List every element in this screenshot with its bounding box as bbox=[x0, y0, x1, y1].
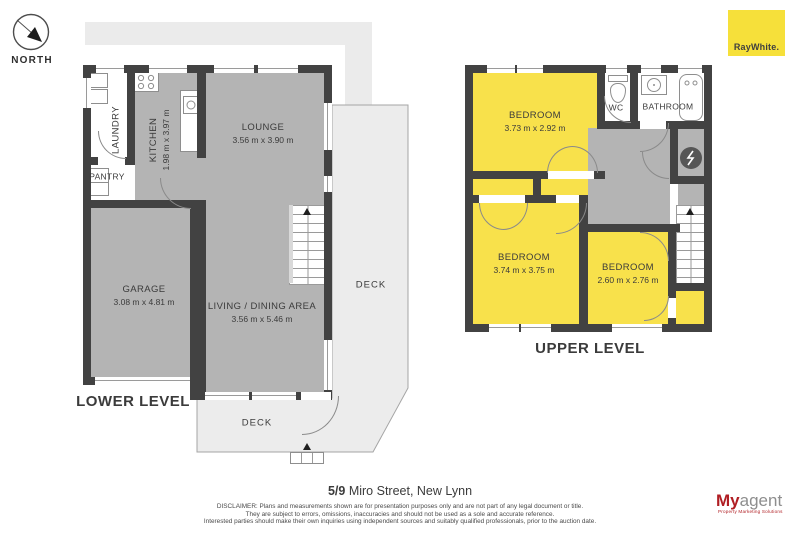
overhang-outline-top bbox=[85, 22, 372, 45]
disclaimer-line: They are subject to errors, omissions, i… bbox=[0, 511, 800, 519]
north-label: NORTH bbox=[6, 55, 58, 66]
window bbox=[96, 65, 124, 73]
upper-level-title: UPPER LEVEL bbox=[535, 339, 645, 359]
address-unit: 5/9 bbox=[328, 484, 345, 498]
stairs-up-arrow-icon bbox=[303, 208, 311, 215]
room-label-pantry: PANTRY bbox=[89, 171, 125, 182]
room-label-bedroom-small: BEDROOM 2.60 m x 2.76 m bbox=[598, 262, 659, 286]
window bbox=[489, 324, 519, 332]
laundry-appliance-icon bbox=[90, 89, 108, 104]
room-label-kitchen: KITCHEN 1.98 m x 3.97 m bbox=[148, 110, 172, 171]
wall bbox=[83, 65, 91, 385]
disclaimer: DISCLAIMER: Plans and measurements shown… bbox=[0, 503, 800, 526]
toilet-icon bbox=[608, 75, 628, 82]
room-label-wc: WC bbox=[609, 102, 624, 113]
hot-water-cylinder-icon bbox=[680, 147, 702, 169]
address-street: Miro Street, New Lynn bbox=[345, 484, 472, 498]
bathtub-icon bbox=[679, 74, 703, 121]
stove-icon bbox=[133, 72, 159, 92]
north-compass-icon bbox=[12, 13, 52, 55]
door-opening bbox=[556, 195, 579, 203]
wall bbox=[670, 129, 678, 183]
lower-level-title: LOWER LEVEL bbox=[76, 392, 190, 412]
stairs-lower bbox=[289, 205, 327, 285]
wall bbox=[533, 179, 541, 195]
window bbox=[487, 65, 515, 73]
stairs-upper bbox=[676, 205, 706, 285]
window bbox=[252, 392, 296, 400]
laundry-appliance-icon bbox=[90, 73, 108, 88]
basin-icon bbox=[641, 75, 667, 95]
window bbox=[641, 65, 661, 73]
room-label-bathroom: BATHROOM bbox=[643, 101, 694, 112]
room-label-garage: GARAGE 3.08 m x 4.81 m bbox=[114, 284, 175, 308]
wall bbox=[668, 283, 712, 291]
kitchen-floor bbox=[197, 158, 206, 200]
window bbox=[517, 65, 543, 73]
raywhite-logo-text: RayWhite. bbox=[728, 42, 785, 52]
deck-steps-arrow-icon bbox=[303, 443, 311, 450]
wall bbox=[704, 65, 712, 332]
property-address: 5/9 Miro Street, New Lynn bbox=[0, 484, 800, 498]
window bbox=[149, 65, 187, 73]
door-opening bbox=[668, 298, 676, 318]
door-opening bbox=[479, 195, 525, 203]
window bbox=[205, 392, 249, 400]
deck-steps bbox=[290, 452, 324, 464]
wall bbox=[630, 65, 638, 123]
closet-floor bbox=[676, 291, 704, 324]
window bbox=[612, 324, 662, 332]
disclaimer-line: DISCLAIMER: Plans and measurements shown… bbox=[0, 503, 800, 511]
room-label-laundry: LAUNDRY bbox=[111, 106, 124, 154]
myagent-logo-agent: agent bbox=[740, 491, 783, 510]
garage-door bbox=[95, 377, 190, 385]
room-label-bedroom-top: BEDROOM 3.73 m x 2.92 m bbox=[505, 110, 566, 134]
wall bbox=[197, 65, 206, 158]
stairs-rail bbox=[289, 205, 293, 283]
window bbox=[258, 65, 298, 73]
wall bbox=[670, 176, 712, 184]
wall bbox=[190, 200, 206, 400]
window bbox=[678, 65, 702, 73]
wall bbox=[666, 121, 712, 129]
stairs-up-arrow-icon bbox=[686, 208, 694, 215]
myagent-logo-my: My bbox=[716, 491, 740, 510]
window bbox=[214, 65, 254, 73]
wall bbox=[127, 65, 135, 165]
window bbox=[521, 324, 551, 332]
window bbox=[324, 340, 332, 390]
room-label-bedroom-main: BEDROOM 3.74 m x 3.75 m bbox=[494, 252, 555, 276]
wall bbox=[588, 224, 680, 232]
room-label-lounge: LOUNGE 3.56 m x 3.90 m bbox=[233, 122, 294, 146]
wall bbox=[668, 224, 676, 288]
myagent-logo: Myagent Property Marketing Solutions bbox=[716, 492, 800, 514]
floorplan-sheet: NORTH RayWhite. bbox=[0, 0, 800, 533]
window bbox=[83, 78, 91, 108]
wardrobe-floor bbox=[473, 179, 535, 196]
disclaimer-line: Interested parties should make their own… bbox=[0, 518, 800, 526]
deck-label-side: DECK bbox=[356, 280, 386, 293]
wall bbox=[597, 121, 640, 129]
myagent-tagline: Property Marketing Solutions bbox=[718, 509, 800, 514]
overhang-outline-right bbox=[345, 45, 372, 106]
room-label-living-dining: LIVING / DINING AREA 3.56 m x 5.46 m bbox=[208, 301, 316, 325]
window bbox=[324, 176, 332, 192]
window bbox=[324, 103, 332, 150]
hallway-floor bbox=[678, 184, 704, 205]
deck-label-front: DECK bbox=[242, 418, 272, 431]
raywhite-logo: RayWhite. bbox=[728, 10, 785, 56]
window bbox=[606, 65, 627, 73]
